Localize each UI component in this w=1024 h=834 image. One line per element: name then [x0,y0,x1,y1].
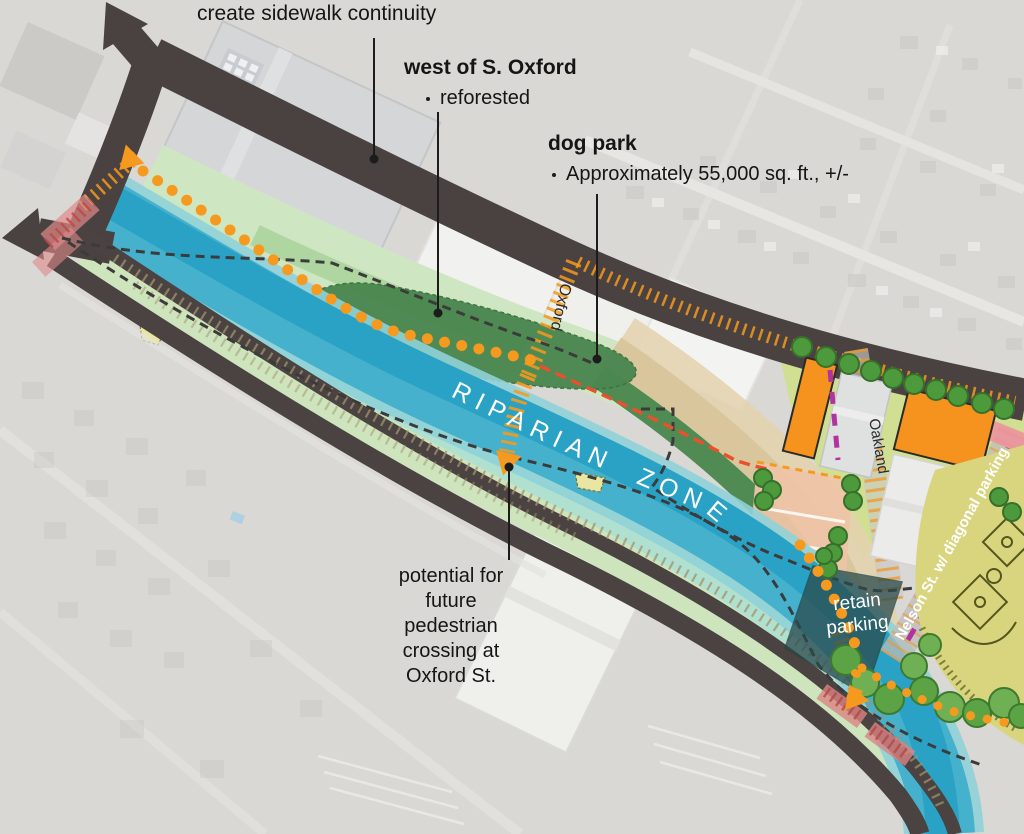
crossing-note-line: Oxford St. [378,664,524,689]
plan-map-canvas: RIPARIAN ZONE Oxford Oakland Nelson St. … [0,0,1024,834]
crossing-note-line: crossing at [378,639,524,664]
annotation-west-oxford-title: west of S. Oxford [404,56,577,80]
bullet-dot [426,97,430,101]
bullet-dot [552,173,556,177]
annotation-sidewalk-continuity: create sidewalk continuity [197,2,436,26]
annotation-west-oxford-bullet: reforested [440,87,530,110]
annotation-dog-park-bullet: Approximately 55,000 sq. ft., +/- [566,163,849,186]
crossing-note-line: pedestrian [378,614,524,639]
annotation-dog-park-title: dog park [548,132,849,156]
crossing-note-line: future [378,589,524,614]
annotation-dog-park: dog park Approximately 55,000 sq. ft., +… [548,132,849,186]
annotation-pedestrian-crossing: potential for future pedestrian crossing… [378,564,524,689]
annotation-west-oxford: west of S. Oxford reforested [404,56,577,110]
crossing-note-line: potential for [378,564,524,589]
riparian-zone-plan: RIPARIAN ZONE Oxford Oakland Nelson St. … [0,0,1024,834]
